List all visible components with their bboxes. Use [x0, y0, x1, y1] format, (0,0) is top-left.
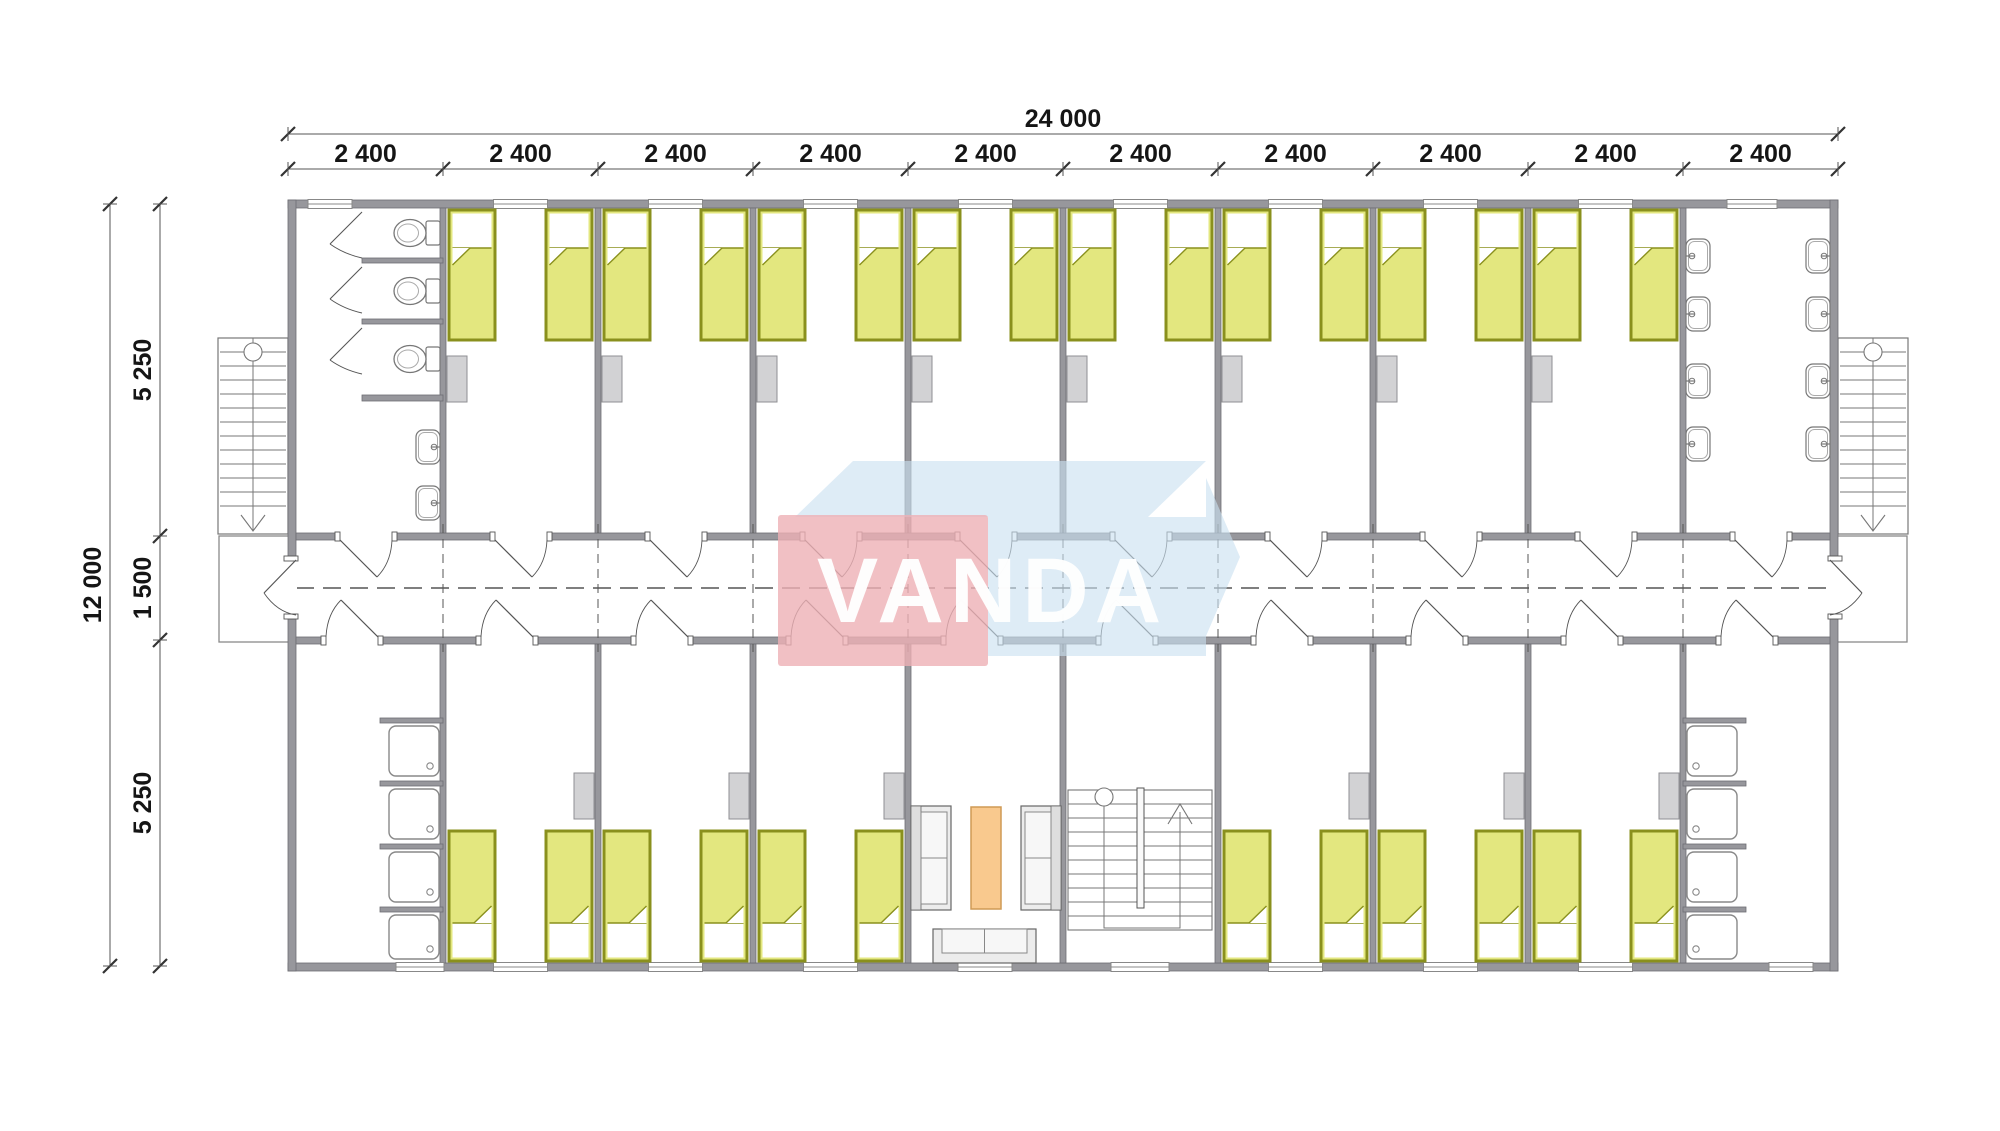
bed: [759, 210, 805, 340]
door-opening: [650, 532, 702, 541]
bed-pillow: [1480, 214, 1519, 248]
dimension-label-total-width: 24 000: [1025, 105, 1101, 133]
door-leaf: [341, 600, 378, 637]
door-swing-arc: [377, 540, 392, 577]
bed: [1224, 210, 1270, 340]
bed-pillow: [1325, 924, 1364, 958]
door-jamb: [490, 532, 495, 541]
stair-start-circle: [1095, 788, 1113, 806]
room-divider-bottom: [595, 644, 601, 963]
door-leaf: [495, 540, 532, 577]
watermark-text: VANDA: [817, 540, 1167, 642]
wardrobe: [1532, 356, 1552, 402]
bed: [1476, 831, 1522, 961]
door-jamb: [1251, 636, 1256, 645]
wardrobe: [602, 356, 622, 402]
bed: [1321, 831, 1367, 961]
bed-pillow: [1383, 924, 1422, 958]
bed-pillow: [1635, 214, 1674, 248]
wardrobe: [757, 356, 777, 402]
stall-door-arc: [330, 299, 362, 313]
wardrobe: [1659, 773, 1679, 819]
armchair-back: [911, 806, 921, 910]
bed-pillow: [918, 214, 957, 248]
bed: [1379, 831, 1425, 961]
bed-pillow: [1538, 214, 1577, 248]
door-opening: [1721, 636, 1773, 645]
door-jamb: [645, 532, 650, 541]
door-jamb: [392, 532, 397, 541]
stair-divider: [1137, 788, 1144, 908]
bed-pillow: [763, 924, 802, 958]
coffee-table: [971, 807, 1001, 909]
door-swing-arc: [481, 600, 496, 637]
bed: [701, 831, 747, 961]
room-divider-bottom: [750, 644, 756, 963]
shower-partition: [1683, 844, 1746, 849]
stall-door-leaf: [330, 212, 362, 244]
door-leaf: [651, 600, 688, 637]
bed: [1321, 210, 1367, 340]
armchair: [911, 806, 951, 910]
door-opening: [481, 636, 533, 645]
bed: [449, 831, 495, 961]
door-swing-arc: [1462, 540, 1477, 577]
stall-door-leaf: [330, 328, 362, 360]
shower-partition: [380, 718, 443, 723]
door-leaf: [1735, 540, 1772, 577]
bed-pillow: [1635, 924, 1674, 958]
door-swing-arc: [1256, 600, 1271, 637]
wardrobe: [1349, 773, 1369, 819]
room-divider-top: [1680, 208, 1686, 533]
bed: [701, 210, 747, 340]
door-swing-arc: [687, 540, 702, 577]
wardrobe: [1377, 356, 1397, 402]
door-jamb: [547, 532, 552, 541]
bed-pillow: [608, 924, 647, 958]
room-divider-top: [595, 208, 601, 533]
door-swing-arc: [1617, 540, 1632, 577]
room-divider-bottom: [1370, 644, 1376, 963]
dimension-label-left-segment: 1 500: [129, 557, 157, 620]
bed-pillow: [550, 924, 589, 958]
bed: [856, 831, 902, 961]
dimension-label-left-segment: 5 250: [129, 339, 157, 402]
bed-pillow: [550, 214, 589, 248]
toilet-bowl: [394, 220, 426, 247]
door-leaf: [1425, 540, 1462, 577]
door-leaf: [1580, 540, 1617, 577]
toilet-bowl: [394, 346, 426, 373]
bed: [856, 210, 902, 340]
shower-partition: [380, 907, 443, 912]
bed-pillow: [1170, 214, 1209, 248]
door-swing-arc: [1411, 600, 1426, 637]
door-jamb: [378, 636, 383, 645]
wardrobe: [447, 356, 467, 402]
toilet-tank: [426, 347, 440, 371]
dimension-label-segment: 2 400: [644, 140, 707, 168]
toilet-stall-partition: [362, 319, 443, 324]
toilet-tank: [426, 221, 440, 245]
toilet-stall-partition: [362, 395, 443, 401]
armchair: [1021, 806, 1061, 910]
bed: [1476, 210, 1522, 340]
wardrobe: [912, 356, 932, 402]
door-jamb: [1308, 636, 1313, 645]
room-divider-top: [1370, 208, 1376, 533]
door-swing-arc: [532, 540, 547, 577]
door-swing-arc: [1307, 540, 1322, 577]
bed: [1069, 210, 1115, 340]
stall-door-arc: [330, 244, 362, 258]
door-jamb: [1632, 532, 1637, 541]
bed-pillow: [453, 924, 492, 958]
door-jamb: [1773, 636, 1778, 645]
door-leaf: [1426, 600, 1463, 637]
entrance-landing-left: [219, 536, 290, 642]
dimension-label-segment: 2 400: [489, 140, 552, 168]
vanda-watermark: VANDA: [778, 461, 1240, 666]
bed-pillow: [1073, 214, 1112, 248]
toilet-tank: [426, 279, 440, 303]
wardrobe: [884, 773, 904, 819]
bed-pillow: [1480, 924, 1519, 958]
external-stair-left-start-circle: [244, 343, 262, 361]
wardrobe: [1222, 356, 1242, 402]
door-opening: [1256, 636, 1308, 645]
lounge-area: [911, 806, 1061, 963]
door-opening: [1270, 532, 1322, 541]
bed: [1534, 831, 1580, 961]
bed-pillow: [860, 924, 899, 958]
bed-pillow: [1228, 214, 1267, 248]
door-leaf: [1581, 600, 1618, 637]
dimension-label-left-segment: 5 250: [129, 772, 157, 835]
dimension-label-segment: 2 400: [1729, 140, 1792, 168]
door-jamb: [1420, 532, 1425, 541]
toilet-bowl: [394, 278, 426, 305]
bed-pillow: [1015, 214, 1054, 248]
bed-pillow: [860, 214, 899, 248]
door-jamb: [1265, 532, 1270, 541]
door-swing-arc: [1772, 540, 1787, 577]
bed: [604, 831, 650, 961]
door-jamb: [335, 532, 340, 541]
room-divider-bottom: [1215, 644, 1221, 963]
door-opening: [1735, 532, 1787, 541]
bed: [1166, 210, 1212, 340]
bed: [914, 210, 960, 340]
sofa: [933, 929, 1036, 963]
shower-partition: [380, 781, 443, 786]
door-leaf: [1271, 600, 1308, 637]
shower-partition: [1683, 907, 1746, 912]
door-jamb: [1575, 532, 1580, 541]
watermark-top-face: [795, 461, 1206, 517]
bed: [1224, 831, 1270, 961]
entrance-landing-right: [1836, 536, 1907, 642]
room-divider-bottom: [905, 644, 911, 963]
bed-pillow: [608, 214, 647, 248]
dimension-label-segment: 2 400: [1264, 140, 1327, 168]
dimension-label-segment: 2 400: [334, 140, 397, 168]
bed: [546, 210, 592, 340]
door-jamb: [1463, 636, 1468, 645]
door-jamb: [631, 636, 636, 645]
room-divider-bottom: [1525, 644, 1531, 963]
bed-pillow: [1383, 214, 1422, 248]
door-leaf: [650, 540, 687, 577]
bed: [449, 210, 495, 340]
dimension-label-segment: 2 400: [954, 140, 1017, 168]
door-swing-arc: [1566, 600, 1581, 637]
armchair-back: [1051, 806, 1061, 910]
door-jamb: [321, 636, 326, 645]
shower-partition: [380, 844, 443, 849]
bed: [759, 831, 805, 961]
bed: [1011, 210, 1057, 340]
door-jamb: [1618, 636, 1623, 645]
bed-pillow: [453, 214, 492, 248]
dimension-label-segment: 2 400: [1574, 140, 1637, 168]
floor-plan-page: 24 0002 4002 4002 4002 4002 4002 4002 40…: [0, 0, 2000, 1131]
door-opening: [326, 636, 378, 645]
door-opening: [340, 532, 392, 541]
stall-door-arc: [330, 360, 362, 374]
bed: [546, 831, 592, 961]
door-jamb: [1561, 636, 1566, 645]
door-jamb: [476, 636, 481, 645]
door-opening: [1580, 532, 1632, 541]
dimension-label-segment: 2 400: [1109, 140, 1172, 168]
wardrobe: [729, 773, 749, 819]
door-leaf: [340, 540, 377, 577]
external-stair-right-start-circle: [1864, 343, 1882, 361]
bed-pillow: [763, 214, 802, 248]
door-jamb: [702, 532, 707, 541]
shower-partition: [1683, 718, 1746, 723]
bed: [1631, 210, 1677, 340]
toilet-stall-partition: [362, 258, 443, 263]
bed-pillow: [1538, 924, 1577, 958]
shower-partition: [1683, 781, 1746, 786]
bed: [604, 210, 650, 340]
bed-pillow: [705, 214, 744, 248]
room-divider-top: [750, 208, 756, 533]
door-swing-arc: [1721, 600, 1736, 637]
room-divider-top: [1215, 208, 1221, 533]
door-opening: [636, 636, 688, 645]
door-jamb: [533, 636, 538, 645]
door-jamb: [1477, 532, 1482, 541]
wardrobe: [574, 773, 594, 819]
door-jamb: [1716, 636, 1721, 645]
watermark-arrow-tip: [1206, 478, 1240, 636]
door-leaf: [1270, 540, 1307, 577]
floor-plan-canvas: 24 0002 4002 4002 4002 4002 4002 4002 40…: [0, 0, 2000, 1131]
bed-pillow: [1228, 924, 1267, 958]
door-opening: [1566, 636, 1618, 645]
door-swing-arc: [326, 600, 341, 637]
room-divider-top: [440, 208, 446, 533]
internal-stair: [1068, 788, 1212, 930]
door-jamb: [1787, 532, 1792, 541]
bed: [1631, 831, 1677, 961]
dimension-label-total-height: 12 000: [79, 547, 107, 623]
room-divider-bottom: [1680, 644, 1686, 963]
dimension-label-segment: 2 400: [799, 140, 862, 168]
room-divider-bottom: [1060, 644, 1066, 963]
door-leaf: [496, 600, 533, 637]
door-opening: [1425, 532, 1477, 541]
door-leaf: [1736, 600, 1773, 637]
wardrobe: [1504, 773, 1524, 819]
door-jamb: [688, 636, 693, 645]
wardrobe: [1067, 356, 1087, 402]
door-opening: [495, 532, 547, 541]
dimension-label-segment: 2 400: [1419, 140, 1482, 168]
room-divider-top: [1525, 208, 1531, 533]
door-swing-arc: [636, 600, 651, 637]
door-jamb: [1730, 532, 1735, 541]
bed: [1534, 210, 1580, 340]
door-opening: [1411, 636, 1463, 645]
door-jamb: [1406, 636, 1411, 645]
stall-door-leaf: [330, 267, 362, 299]
room-divider-bottom: [440, 644, 446, 963]
bed-pillow: [705, 924, 744, 958]
bed-pillow: [1325, 214, 1364, 248]
door-jamb: [1322, 532, 1327, 541]
bed: [1379, 210, 1425, 340]
